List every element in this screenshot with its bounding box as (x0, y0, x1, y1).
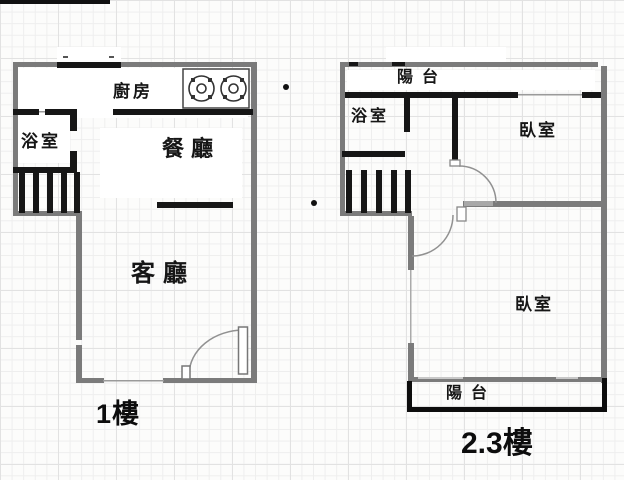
floor23-window-top (518, 94, 582, 96)
label-floor23: 2.3樓 (461, 429, 533, 459)
floor-plan-canvas: 廚房 浴室 餐廳 客廳 1樓 陽台 浴室 臥室 臥室 陽台 2.3樓 (0, 0, 624, 480)
separator-dot-top (283, 84, 289, 90)
label-bathroom-f1: 浴室 (21, 133, 61, 150)
floor1-entry-door (182, 327, 248, 379)
floor23-balcony-outline (407, 378, 607, 412)
floor23-window-left (410, 270, 412, 343)
floor23-bedroom-upper-door (450, 160, 496, 221)
stove-icon (183, 69, 249, 108)
label-bedroom-lower: 臥室 (515, 296, 553, 313)
top-edge-wall-fragment (0, 0, 110, 4)
label-balcony-bottom: 陽台 (446, 386, 496, 402)
floor1-bath-door-line (39, 111, 45, 113)
floor1-stairs (19, 172, 80, 213)
paper-patches (18, 47, 595, 198)
label-kitchen: 廚房 (113, 83, 153, 100)
floor23-divider-leaf (464, 201, 493, 206)
label-bathroom-f23: 浴室 (351, 109, 389, 125)
floor-plan-drawing (0, 0, 624, 480)
floor1-window-bottom (103, 380, 164, 382)
label-dining: 餐廳 (162, 138, 220, 160)
floor23-bedroom-lower-door (412, 215, 453, 256)
label-bedroom-upper: 臥室 (519, 122, 557, 139)
separator-dot-bottom (311, 200, 317, 206)
label-living: 客廳 (131, 262, 195, 286)
floor23-stairs (346, 170, 411, 213)
label-floor1: 1樓 (96, 401, 140, 428)
label-balcony-top: 陽台 (397, 70, 447, 86)
